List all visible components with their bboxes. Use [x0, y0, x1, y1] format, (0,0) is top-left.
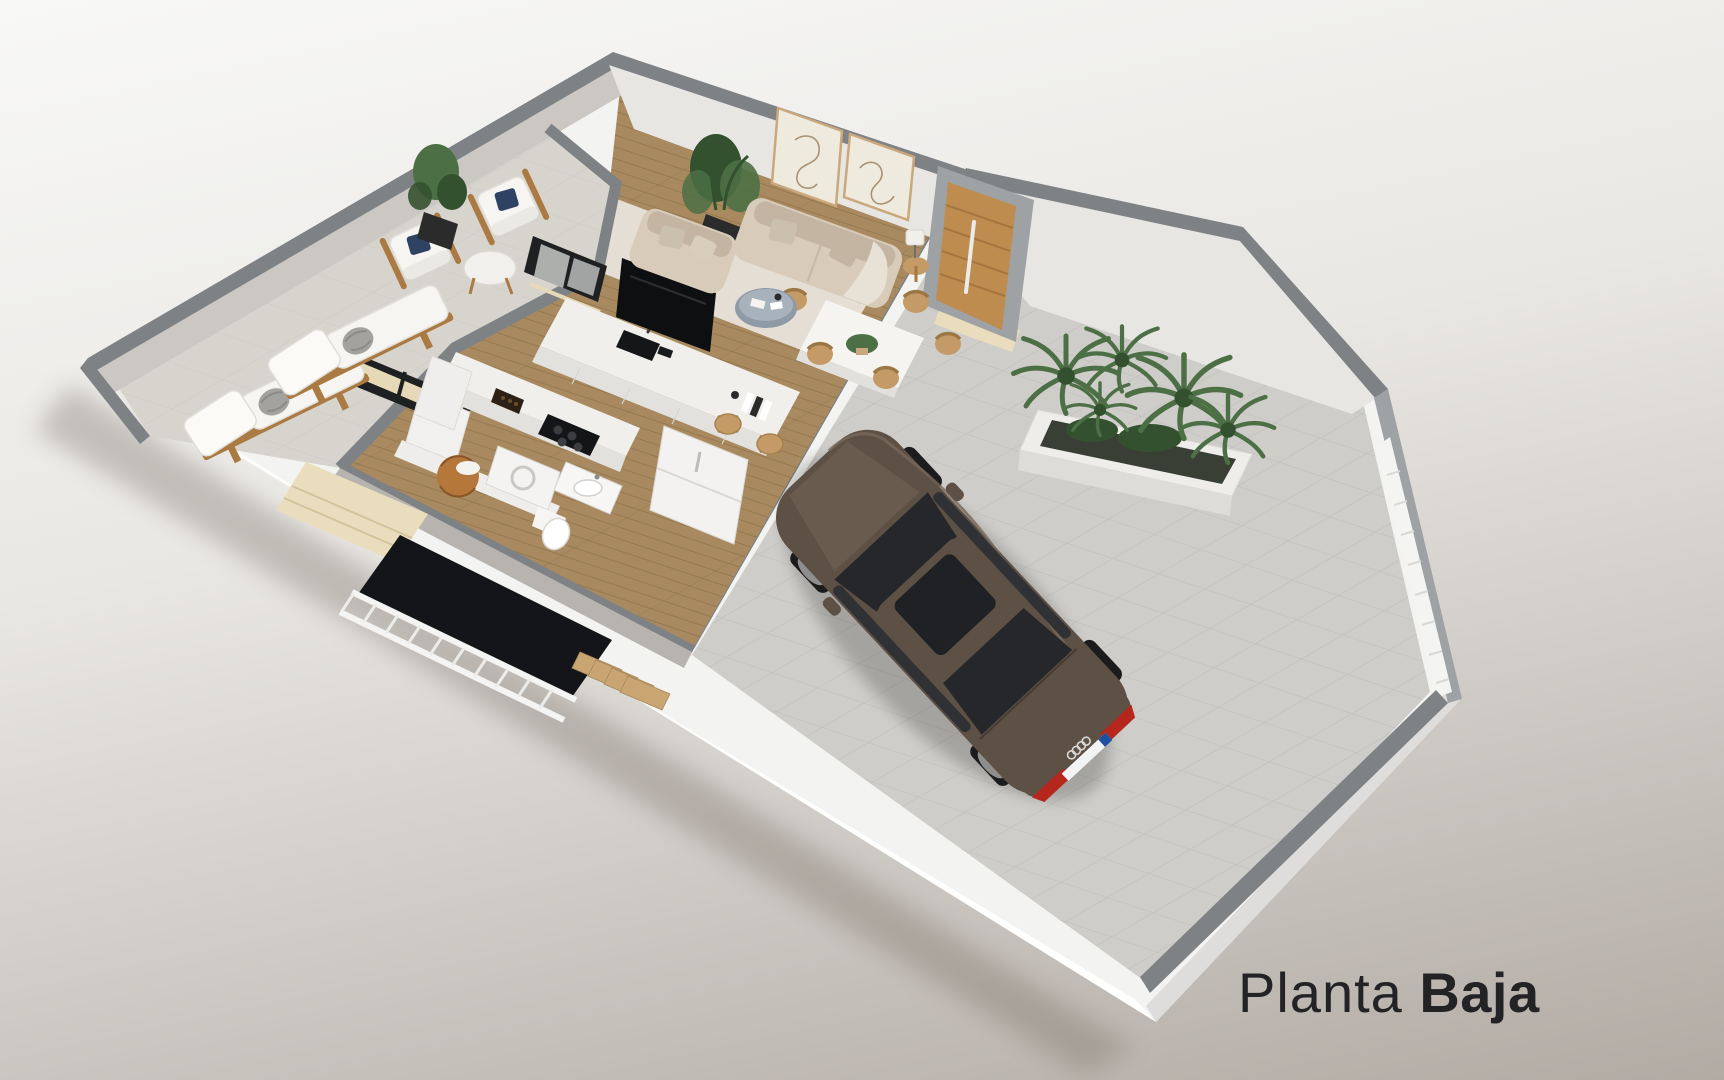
- bar-stool: [715, 414, 741, 434]
- laundry-basket: [437, 455, 480, 497]
- floor-title: Planta Baja: [1238, 961, 1540, 1024]
- floorplan-render: Planta Baja: [0, 0, 1724, 1080]
- bar-stool: [757, 434, 783, 454]
- coffee-table: [735, 288, 797, 328]
- floor-title-bold: Baja: [1419, 961, 1540, 1024]
- floor-title-regular: Planta: [1238, 961, 1419, 1024]
